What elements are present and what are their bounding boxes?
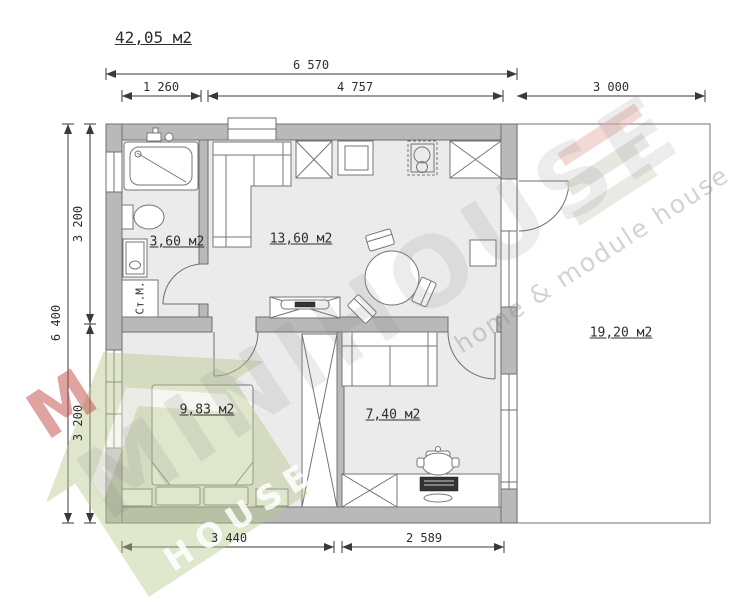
dim-bottom-left: 3 440 — [211, 531, 247, 545]
bedroom-area-label: 9,83 м2 — [180, 403, 235, 418]
wall-bathroom-stub — [199, 304, 208, 317]
dim-side-total: 6 400 — [49, 305, 63, 341]
washbasin — [123, 239, 147, 277]
nightstand-left — [122, 489, 152, 506]
tv-stand — [270, 297, 340, 318]
shower-icon — [165, 133, 173, 141]
wall-cabinet — [470, 240, 496, 266]
dim-side-upper: 3 200 — [71, 206, 85, 242]
living-area-label: 13,60 м2 — [270, 232, 333, 247]
dim-top-left: 1 260 — [143, 80, 179, 94]
toilet — [122, 205, 164, 229]
dim-top-right: 3 000 — [593, 80, 629, 94]
pillow — [156, 487, 200, 505]
pillow — [204, 487, 248, 505]
faucet-icon — [147, 133, 161, 141]
terrace-door-opening — [501, 179, 517, 231]
wall-mid-center — [256, 317, 448, 332]
wall-mid-left — [122, 317, 212, 332]
wall-bottom — [106, 507, 517, 523]
dim-side-lower: 3 200 — [71, 405, 85, 441]
dim-top-total: 6 570 — [293, 58, 329, 72]
terrace-area-label: 19,20 м2 — [590, 326, 653, 341]
wall-right-lower — [501, 489, 517, 523]
terrace-deck — [517, 124, 710, 523]
office-area-label: 7,40 м2 — [366, 408, 421, 423]
wall-right-middle — [501, 307, 517, 374]
nightstand-right — [256, 489, 288, 506]
kitchen-sink — [338, 141, 373, 175]
office-sofa — [342, 332, 437, 386]
office-cabinet — [342, 474, 397, 507]
laptop — [420, 477, 458, 491]
floor-plan-canvas: MINIHOUSE home & module house HOUSE M 42… — [0, 0, 744, 600]
desk — [397, 474, 499, 507]
dim-bottom-right: 2 589 — [406, 531, 442, 545]
total-area-title: 42,05 м2 — [115, 28, 192, 47]
wall-mid-right — [497, 317, 501, 332]
kitchen-wardrobe — [450, 141, 501, 178]
bathroom-area-label: 3,60 м2 — [150, 235, 205, 250]
washing-machine-label: Ст.М. — [134, 281, 147, 314]
wall-right-upper — [501, 124, 517, 179]
dim-top-mid: 4 757 — [337, 80, 373, 94]
bedroom-wardrobe — [302, 334, 337, 507]
kitchen-cabinet — [296, 141, 332, 178]
